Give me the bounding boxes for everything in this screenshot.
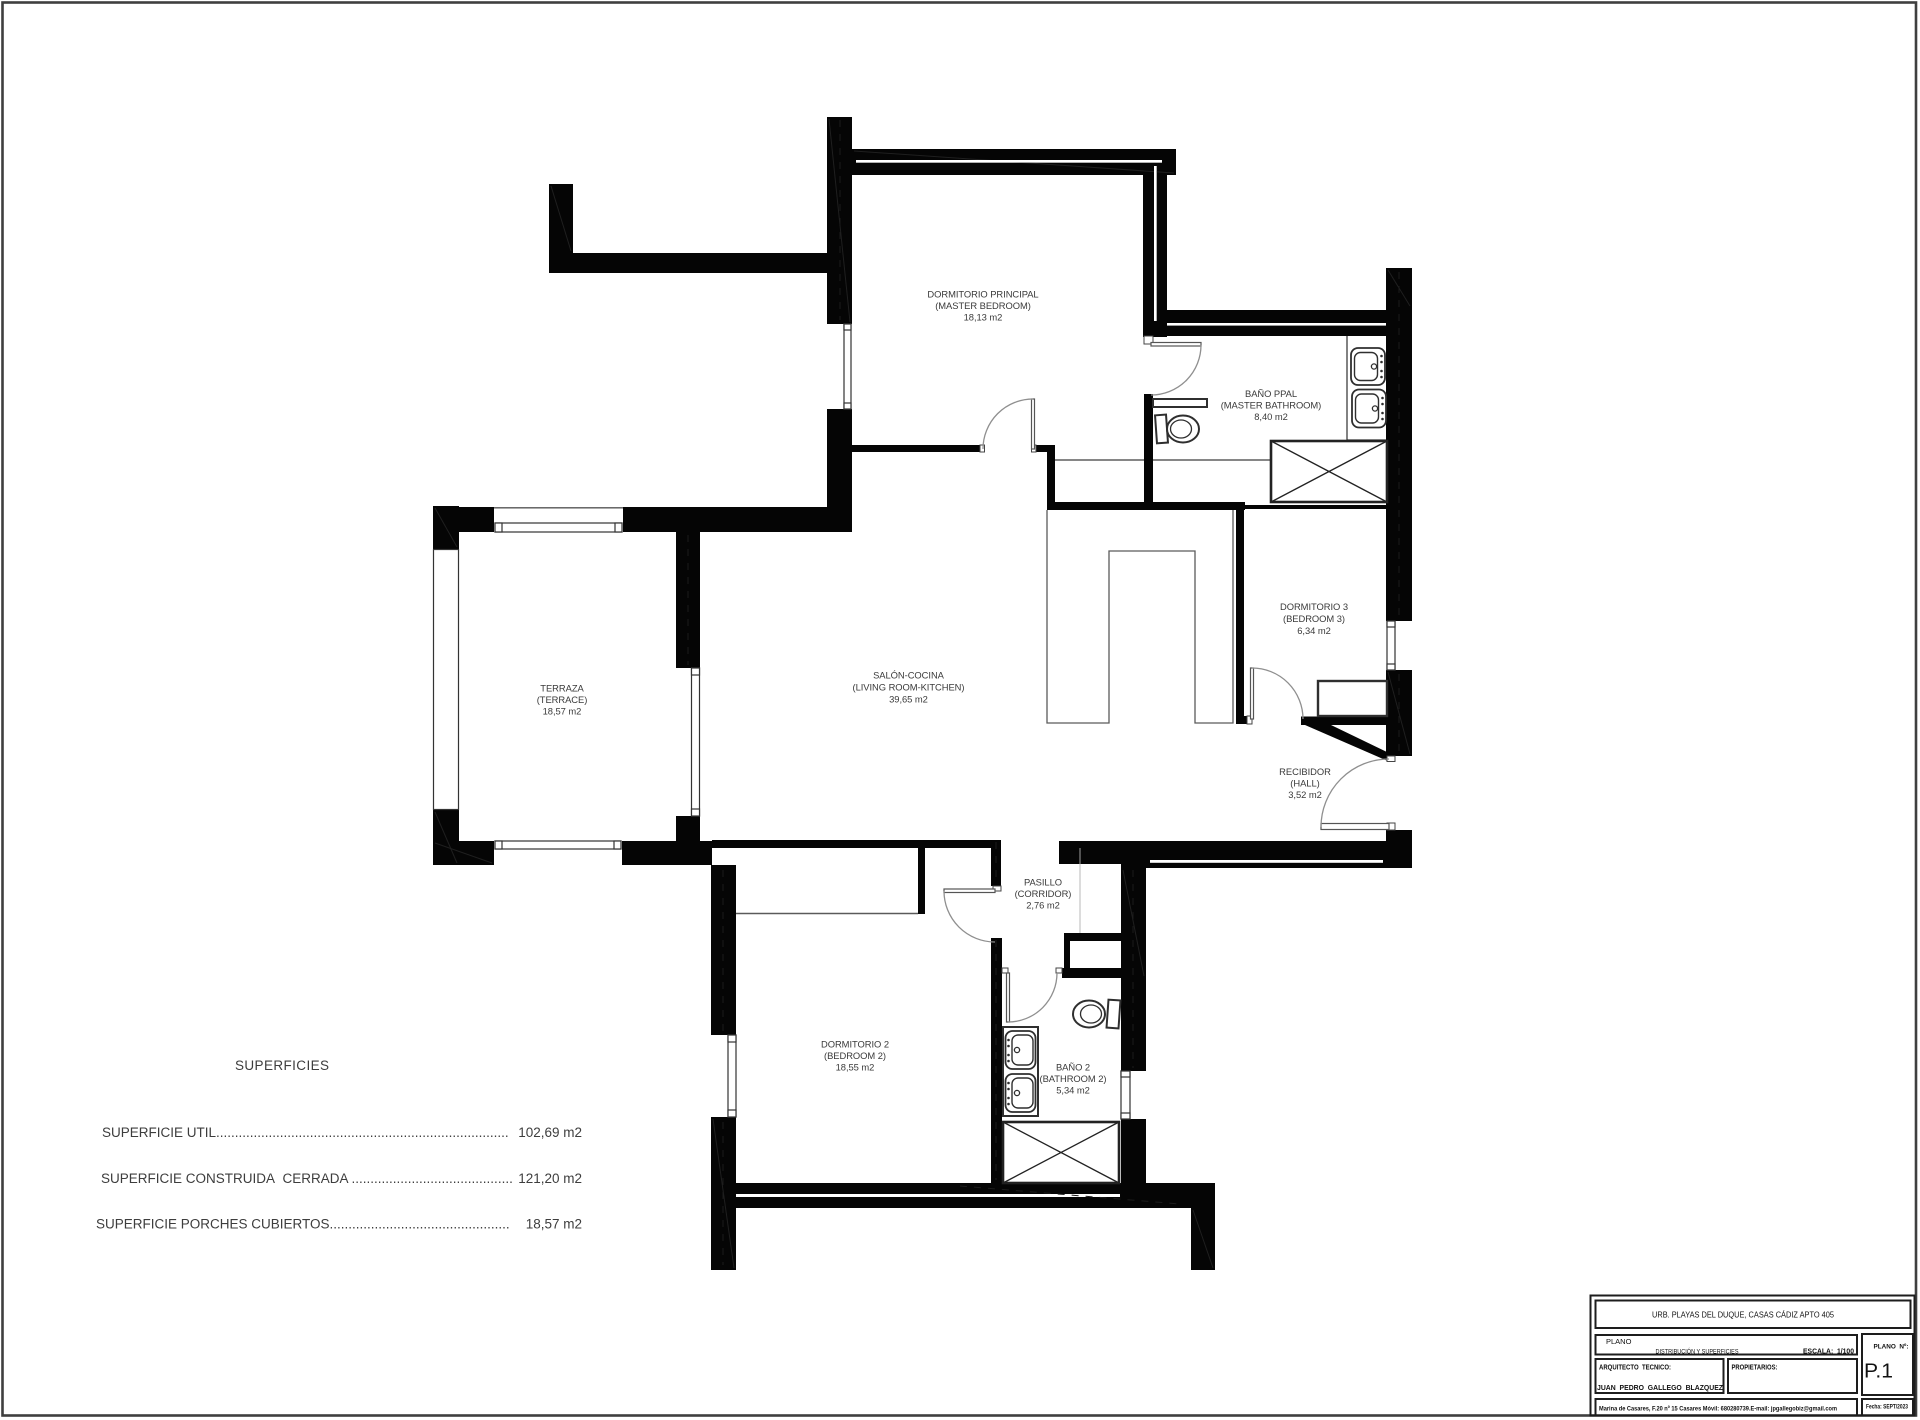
svg-text:DORMITORIO PRINCIPAL: DORMITORIO PRINCIPAL — [927, 289, 1038, 300]
svg-text:Marina de Casares, F.20 nº 15: Marina de Casares, F.20 nº 15 Casares Mó… — [1599, 1407, 1837, 1413]
svg-text:JUAN PEDRO GALLEGO BLAZQUEZ: JUAN PEDRO GALLEGO BLAZQUEZ — [1597, 1383, 1723, 1392]
svg-text:SALÓN-COCINA: SALÓN-COCINA — [873, 670, 945, 681]
svg-text:(LIVING ROOM-KITCHEN): (LIVING ROOM-KITCHEN) — [853, 682, 965, 693]
svg-text:121,20 m2: 121,20 m2 — [518, 1171, 582, 1186]
svg-text:(MASTER BEDROOM): (MASTER BEDROOM) — [935, 300, 1031, 311]
svg-text:DISTRIBUCIÓN Y SUPERFICIES: DISTRIBUCIÓN Y SUPERFICIES — [1656, 1347, 1740, 1356]
svg-text:(BEDROOM 2): (BEDROOM 2) — [824, 1050, 886, 1061]
svg-text:Fecha: SEPT/2023: Fecha: SEPT/2023 — [1866, 1405, 1909, 1411]
svg-text:18,57 m2: 18,57 m2 — [543, 706, 582, 717]
svg-text:SUPERFICIE PORCHES CUBIERTOS..: SUPERFICIE PORCHES CUBIERTOS............… — [96, 1217, 510, 1232]
svg-text:ESCALA: 1/100: ESCALA: 1/100 — [1803, 1349, 1854, 1356]
svg-text:8,40 m2: 8,40 m2 — [1254, 411, 1288, 422]
svg-text:(CORRIDOR): (CORRIDOR) — [1015, 888, 1072, 899]
svg-text:18,13 m2: 18,13 m2 — [964, 312, 1003, 323]
svg-text:2,76 m2: 2,76 m2 — [1026, 900, 1060, 911]
svg-text:(TERRACE): (TERRACE) — [537, 694, 588, 705]
svg-text:PLANO: PLANO — [1606, 1337, 1632, 1346]
svg-text:PLANO Nº:: PLANO Nº: — [1874, 1344, 1909, 1351]
svg-text:3,52 m2: 3,52 m2 — [1288, 789, 1322, 800]
svg-text:SUPERFICIE UTIL...............: SUPERFICIE UTIL.........................… — [102, 1125, 509, 1140]
svg-text:(BATHROOM 2): (BATHROOM 2) — [1040, 1073, 1107, 1084]
svg-text:P.1: P.1 — [1864, 1360, 1893, 1383]
svg-text:SUPERFICIES: SUPERFICIES — [235, 1058, 329, 1073]
svg-text:39,65 m2: 39,65 m2 — [889, 694, 928, 705]
svg-text:DORMITORIO 2: DORMITORIO 2 — [821, 1039, 889, 1050]
svg-text:ARQUITECTO TECNICO:: ARQUITECTO TECNICO: — [1599, 1365, 1671, 1372]
svg-text:(BEDROOM 3): (BEDROOM 3) — [1283, 613, 1345, 624]
svg-text:(MASTER BATHROOM): (MASTER BATHROOM) — [1221, 400, 1322, 411]
svg-text:5,34 m2: 5,34 m2 — [1056, 1085, 1090, 1096]
svg-text:RECIBIDOR: RECIBIDOR — [1279, 766, 1331, 777]
svg-text:PROPIETARIOS:: PROPIETARIOS: — [1732, 1365, 1778, 1372]
svg-text:TERRAZA: TERRAZA — [540, 683, 584, 694]
svg-text:(HALL): (HALL) — [1290, 778, 1319, 789]
svg-text:BAÑO PPAL: BAÑO PPAL — [1245, 388, 1297, 399]
svg-text:PASILLO: PASILLO — [1024, 877, 1062, 888]
svg-text:6,34 m2: 6,34 m2 — [1297, 625, 1331, 636]
svg-text:URB. PLAYAS DEL DUQUE, CASAS C: URB. PLAYAS DEL DUQUE, CASAS CÁDIZ APTO … — [1652, 1311, 1835, 1320]
svg-text:DORMITORIO 3: DORMITORIO 3 — [1280, 601, 1348, 612]
svg-text:SUPERFICIE CONSTRUIDA CERRADA: SUPERFICIE CONSTRUIDA CERRADA ..........… — [101, 1171, 513, 1186]
svg-text:102,69 m2: 102,69 m2 — [518, 1125, 582, 1140]
svg-text:BAÑO 2: BAÑO 2 — [1056, 1062, 1090, 1073]
svg-text:18,57 m2: 18,57 m2 — [526, 1217, 582, 1232]
svg-text:18,55 m2: 18,55 m2 — [836, 1062, 875, 1073]
